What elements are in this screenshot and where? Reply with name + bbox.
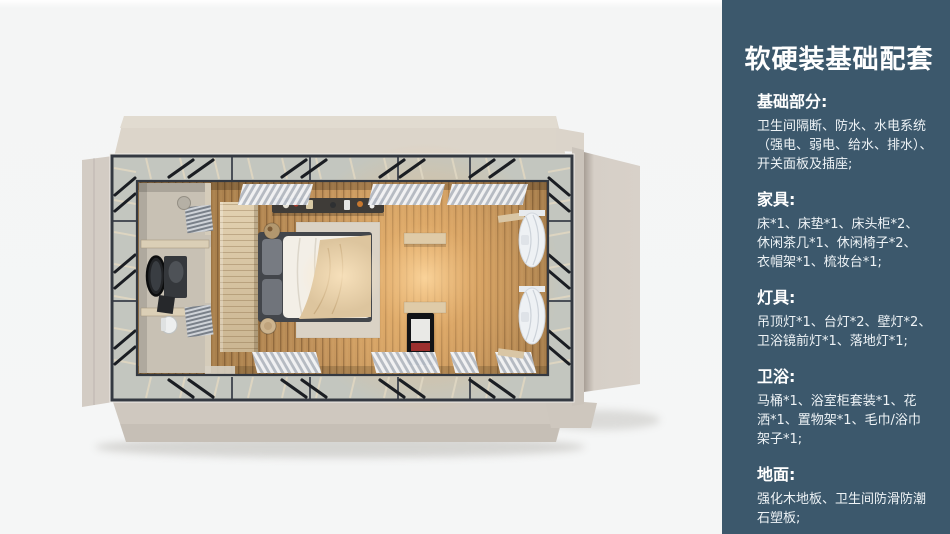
spec-section-basics: 基础部分: 卫生间隔断、防水、水电系统（强电、弱电、给水、排水）、开关面板及插座…: [757, 92, 936, 174]
section-body: 吊顶灯*1、台灯*2、壁灯*2、卫浴镜前灯*1、落地灯*1;: [757, 313, 936, 351]
room-top-view: [0, 0, 722, 534]
side-table: [264, 223, 280, 239]
spec-section-furniture: 家具: 床*1、床垫*1、床头柜*2、休闲茶几*1、休闲椅子*2、衣帽架*1、梳…: [757, 190, 936, 272]
bathroom: [139, 183, 213, 373]
curtain-panel: [368, 184, 445, 205]
spec-sections: 基础部分: 卫生间隔断、防水、水电系统（强电、弱电、给水、排水）、开关面板及插座…: [757, 92, 936, 528]
curtain-panel: [252, 352, 321, 373]
console-shadow: [272, 213, 384, 216]
section-heading: 地面:: [757, 465, 936, 485]
bathroom-wall-seg: [205, 247, 211, 303]
curtain-panel: [447, 184, 528, 205]
shower-screen: [185, 205, 214, 234]
wash-basin: [169, 261, 184, 283]
storage-content: [411, 319, 430, 341]
spec-section-bath: 卫浴: 马桶*1、浴室柜套装*1、花洒*1、置物架*1、毛巾/浴巾架子*1;: [757, 367, 936, 449]
roof-panel-top-right-step: [556, 128, 584, 152]
decor-item: [357, 201, 363, 207]
bathroom-mirror-glass: [151, 261, 162, 291]
section-body: 马桶*1、浴室柜套装*1、花洒*1、置物架*1、毛巾/浴巾架子*1;: [757, 392, 936, 449]
storage-content-red: [411, 343, 430, 351]
roof-panel-top-fold: [120, 116, 558, 128]
shower-screen: [185, 305, 214, 338]
shelf-shadow: [404, 244, 446, 247]
wardrobe-grain: [220, 202, 258, 352]
spec-sidebar: 软硬装基础配套 基础部分: 卫生间隔断、防水、水电系统（强电、弱电、给水、排水）…: [722, 0, 950, 534]
side-table-decor: [268, 227, 273, 232]
wardrobe-highlight: [220, 202, 223, 352]
decor-item: [330, 202, 336, 208]
sidebar-title: 软硬装基础配套: [739, 44, 939, 76]
curtain-tie: [521, 235, 529, 245]
section-body: 床*1、床垫*1、床头柜*2、休闲茶几*1、休闲椅子*2、衣帽架*1、梳妆台*1…: [757, 215, 936, 272]
slide: 软硬装基础配套 基础部分: 卫生间隔断、防水、水电系统（强电、弱电、给水、排水）…: [0, 0, 950, 534]
section-body: 卫生间隔断、防水、水电系统（强电、弱电、给水、排水）、开关面板及插座;: [757, 117, 936, 174]
roof-panel-right: [584, 152, 640, 392]
shelf: [404, 233, 446, 244]
bathroom-partition: [141, 240, 209, 248]
door-mat: [205, 366, 235, 375]
spec-section-lighting: 灯具: 吊顶灯*1、台灯*2、壁灯*2、卫浴镜前灯*1、落地灯*1;: [757, 288, 936, 351]
section-body: 强化木地板、卫生间防滑防潮石塑板;: [757, 490, 936, 528]
curtain-panel: [238, 184, 313, 205]
curtains-top: [238, 184, 528, 205]
decor-item: [344, 200, 350, 210]
shower-drain: [178, 197, 191, 210]
roof-panel-bottom-fold: [120, 424, 560, 442]
toilet-tank: [161, 318, 166, 331]
spec-section-floor: 地面: 强化木地板、卫生间防滑防潮石塑板;: [757, 465, 936, 528]
section-heading: 卫浴:: [757, 367, 936, 387]
wardrobe-panel: [220, 202, 259, 352]
stool-top: [264, 322, 272, 330]
bathroom-wall-shadow: [139, 183, 211, 192]
roof-panel-bottom-right-step: [545, 399, 597, 428]
room-render-area: [0, 0, 722, 534]
roof-panel-left: [82, 156, 113, 407]
section-heading: 灯具:: [757, 288, 936, 308]
bed-glow: [300, 240, 384, 312]
shelf: [404, 302, 446, 313]
curtain-panel: [371, 352, 440, 373]
interior: [137, 143, 560, 413]
bed-pillow: [262, 239, 282, 275]
bed: [258, 222, 384, 338]
section-heading: 基础部分:: [757, 92, 936, 112]
vanity-stool: [157, 295, 175, 314]
section-heading: 家具:: [757, 190, 936, 210]
curtain-tie: [521, 312, 529, 322]
bed-pillow: [262, 279, 282, 315]
